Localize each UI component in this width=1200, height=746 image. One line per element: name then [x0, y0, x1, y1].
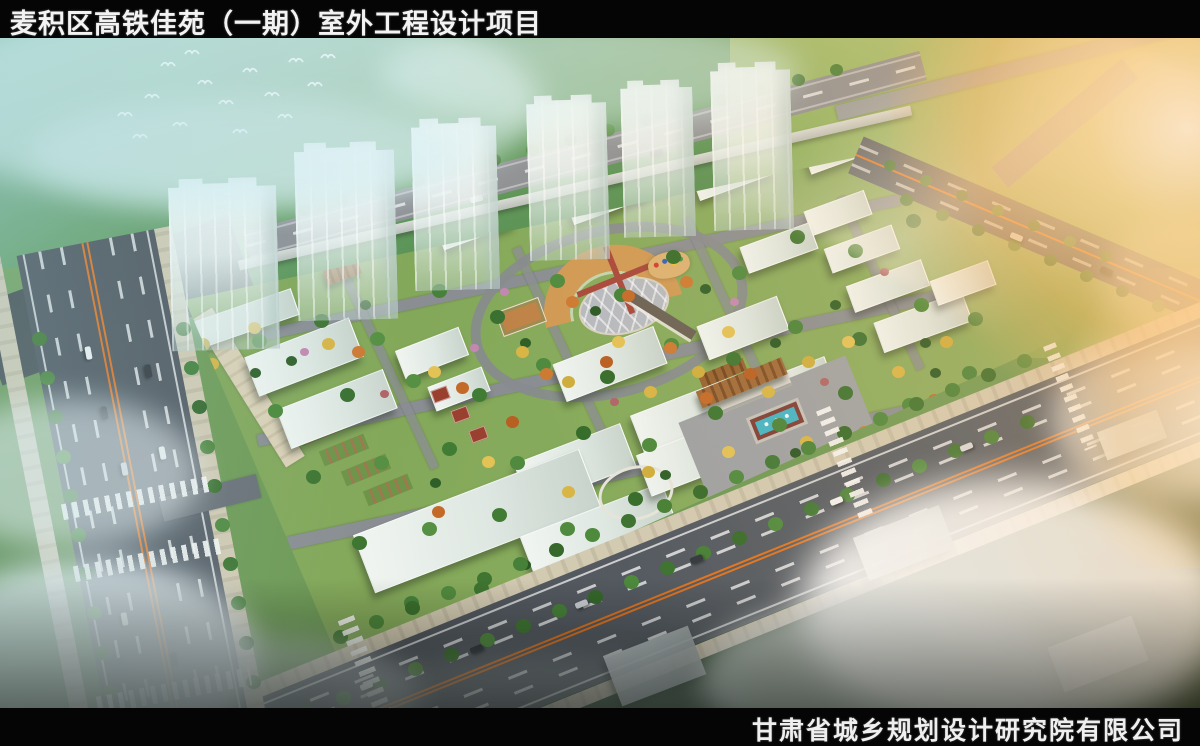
play-equipment: [653, 262, 659, 268]
rendering-board: 麦积区高铁佳苑（一期）室外工程设计项目 甘肃省城乡规划设计研究院有限公司: [0, 0, 1200, 746]
play-equipment: [678, 256, 684, 262]
title-bar: 麦积区高铁佳苑（一期）室外工程设计项目: [0, 0, 1200, 38]
project-title: 麦积区高铁佳苑（一期）室外工程设计项目: [10, 2, 542, 41]
play-equipment: [671, 260, 677, 266]
left-roadside-trees: [32, 332, 47, 346]
aerial-rendering: [0, 38, 1200, 708]
sun-glare-secondary: [1020, 268, 1200, 568]
mist-cloud: [30, 98, 460, 208]
play-equipment: [662, 258, 668, 264]
company-name: 甘肃省城乡规划设计研究院有限公司: [752, 711, 1184, 746]
footer-bar: 甘肃省城乡规划设计研究院有限公司: [0, 708, 1200, 746]
